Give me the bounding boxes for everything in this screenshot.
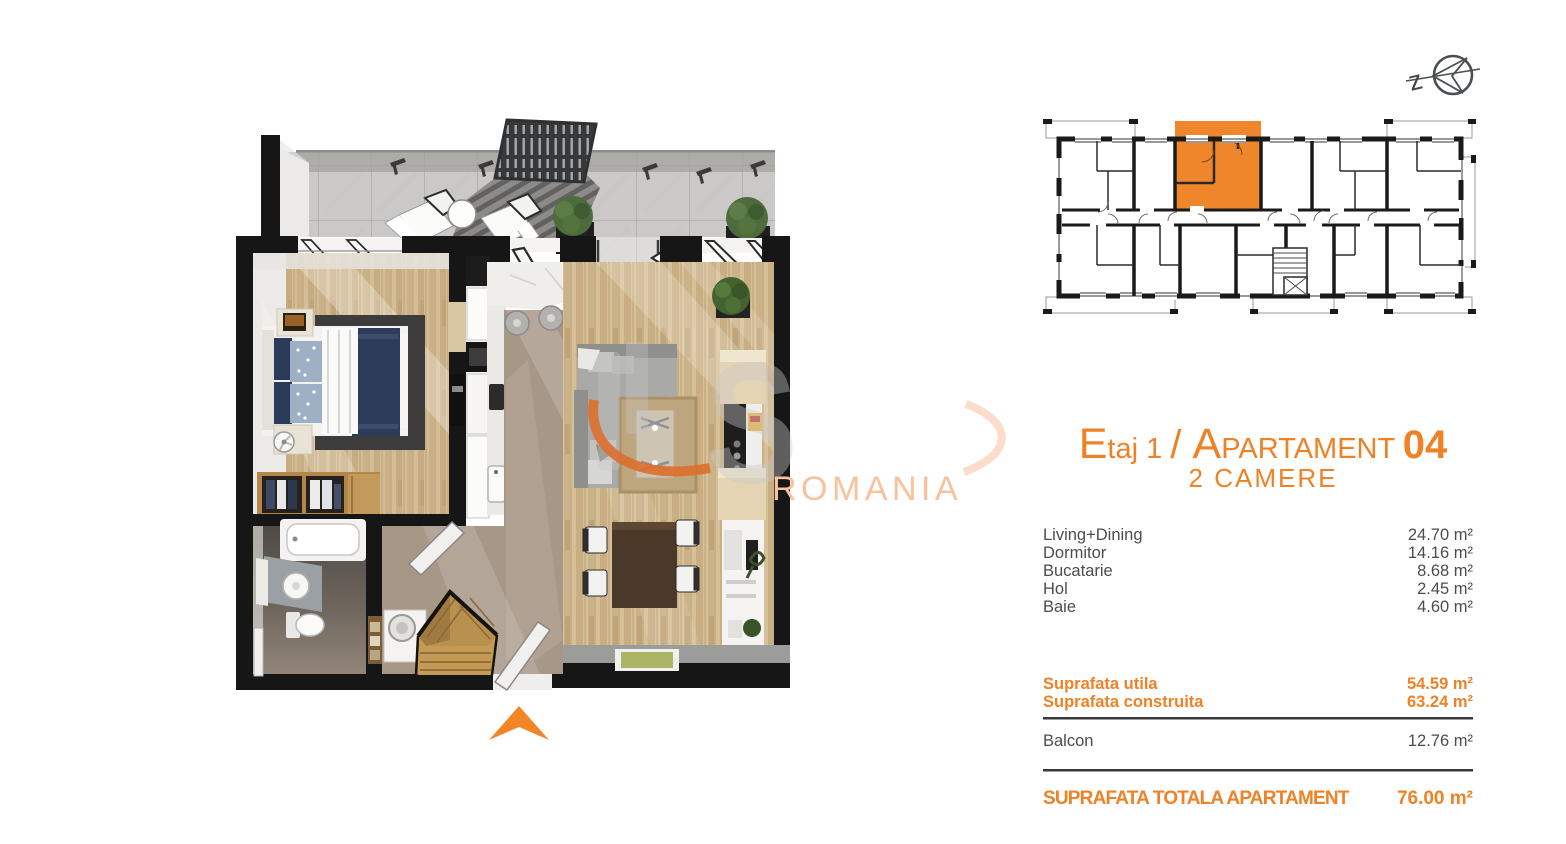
svg-text:Living+Dining: Living+Dining bbox=[1043, 526, 1143, 544]
svg-text:76.00 m²: 76.00 m² bbox=[1397, 788, 1473, 809]
svg-text:63.24 m²: 63.24 m² bbox=[1407, 693, 1474, 711]
svg-text:14.16 m²: 14.16 m² bbox=[1408, 544, 1474, 562]
svg-text:Dormitor: Dormitor bbox=[1043, 544, 1107, 562]
svg-text:SUPRAFATA TOTALA APARTAMENT: SUPRAFATA TOTALA APARTAMENT bbox=[1043, 788, 1350, 809]
svg-text:Hol: Hol bbox=[1043, 580, 1068, 598]
svg-text:54.59 m²: 54.59 m² bbox=[1407, 675, 1474, 693]
svg-text:Suprafata construita: Suprafata construita bbox=[1043, 693, 1204, 711]
svg-text:Balcon: Balcon bbox=[1043, 732, 1093, 750]
svg-text:Baie: Baie bbox=[1043, 598, 1076, 616]
svg-text:Suprafata utila: Suprafata utila bbox=[1043, 675, 1158, 693]
svg-text:2.45 m²: 2.45 m² bbox=[1417, 580, 1473, 598]
svg-text:12.76 m²: 12.76 m² bbox=[1408, 732, 1474, 750]
svg-text:8.68 m²: 8.68 m² bbox=[1417, 562, 1473, 580]
svg-text:Bucatarie: Bucatarie bbox=[1043, 562, 1113, 580]
svg-text:2 CAMERE: 2 CAMERE bbox=[1189, 463, 1338, 493]
svg-text:4.60 m²: 4.60 m² bbox=[1417, 598, 1473, 616]
svg-text:24.70 m²: 24.70 m² bbox=[1408, 526, 1474, 544]
svg-text:ROMANIA: ROMANIA bbox=[772, 470, 962, 508]
